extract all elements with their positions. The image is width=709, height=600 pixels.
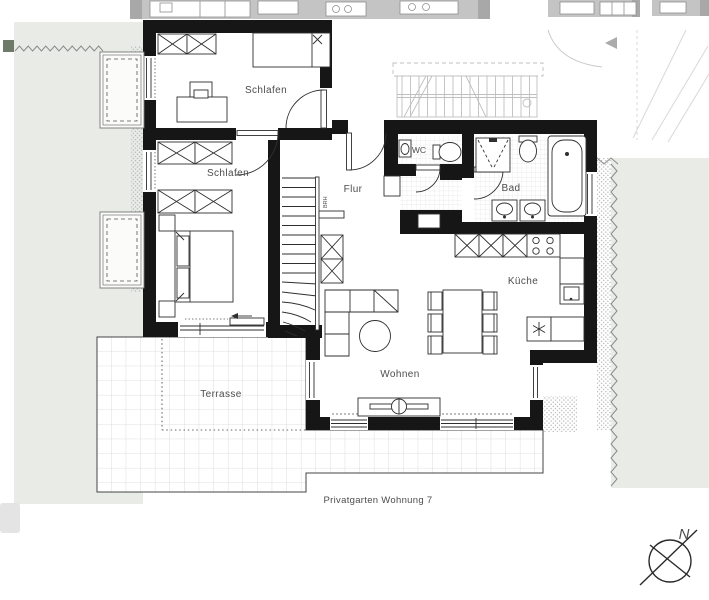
window-schlafen2-south: [178, 318, 266, 337]
dining-set: [428, 290, 497, 354]
stair-rail-bar: [319, 211, 344, 218]
bed-double: [159, 215, 233, 317]
neighbor-arrow-icon: [605, 37, 617, 49]
room-label-schlafen-2: Schlafen: [207, 168, 249, 179]
nightstand: [159, 215, 175, 231]
wardrobe-schlafen2-a: [158, 142, 232, 164]
awning-box-2: [100, 212, 144, 288]
gravel-strip-right: [597, 158, 611, 430]
window-schlafen1-west: [143, 56, 156, 100]
common-staircase: [393, 63, 543, 117]
door-schlafen1: [286, 88, 332, 128]
floor-plan-drawing: BRH: [0, 0, 709, 600]
toilet: [433, 143, 461, 162]
neighbor-door-arc: [548, 30, 602, 67]
toilet-wall-hung: [519, 136, 537, 162]
stove: [527, 234, 560, 257]
window-wohnen-east: [530, 365, 543, 400]
floor-plan: BRH: [0, 0, 709, 600]
room-label-wc: WC: [412, 145, 426, 155]
stair-annotation: BRH: [323, 196, 329, 208]
room-label-schlafen-1: Schlafen: [245, 85, 287, 96]
shaft-box-2: [418, 214, 440, 228]
bathtub: [548, 136, 586, 216]
door-entrance: [347, 120, 387, 170]
kitchen-sink: [560, 284, 584, 304]
freezer: [527, 317, 551, 341]
wardrobe-schlafen2-b: [158, 190, 232, 213]
coffee-table: [360, 321, 391, 352]
compass-north-icon: N: [640, 526, 697, 585]
wardrobe-flur: [321, 235, 343, 283]
boundary-marker: [3, 40, 14, 52]
compass-north-label: N: [679, 526, 690, 543]
tv-sideboard: [358, 398, 440, 416]
desk-and-chair: [177, 82, 227, 122]
window-schlafen2-west: [143, 150, 156, 192]
shower: [476, 138, 510, 172]
room-label-wohnen: Wohnen: [380, 369, 419, 380]
nightstand: [159, 301, 175, 317]
room-label-kueche: Küche: [508, 276, 538, 287]
gravel-corner: [543, 396, 577, 432]
window-wohnen-west: [306, 360, 320, 400]
garden-caption: Privatgarten Wohnung 7: [324, 495, 433, 506]
room-label-bad: Bad: [502, 183, 521, 194]
room-label-terrasse: Terrasse: [200, 389, 242, 400]
edge-tab: [0, 503, 20, 533]
bed-single: [253, 33, 330, 67]
shaft-box: [384, 176, 400, 196]
stair-handrail: [316, 177, 320, 330]
wardrobe-schlafen1: [158, 34, 216, 54]
awning-box-1: [100, 52, 144, 128]
room-label-flur: Flur: [344, 184, 363, 195]
window-wohnen-south-2: [440, 414, 514, 430]
neighbor-unit: [130, 0, 709, 19]
